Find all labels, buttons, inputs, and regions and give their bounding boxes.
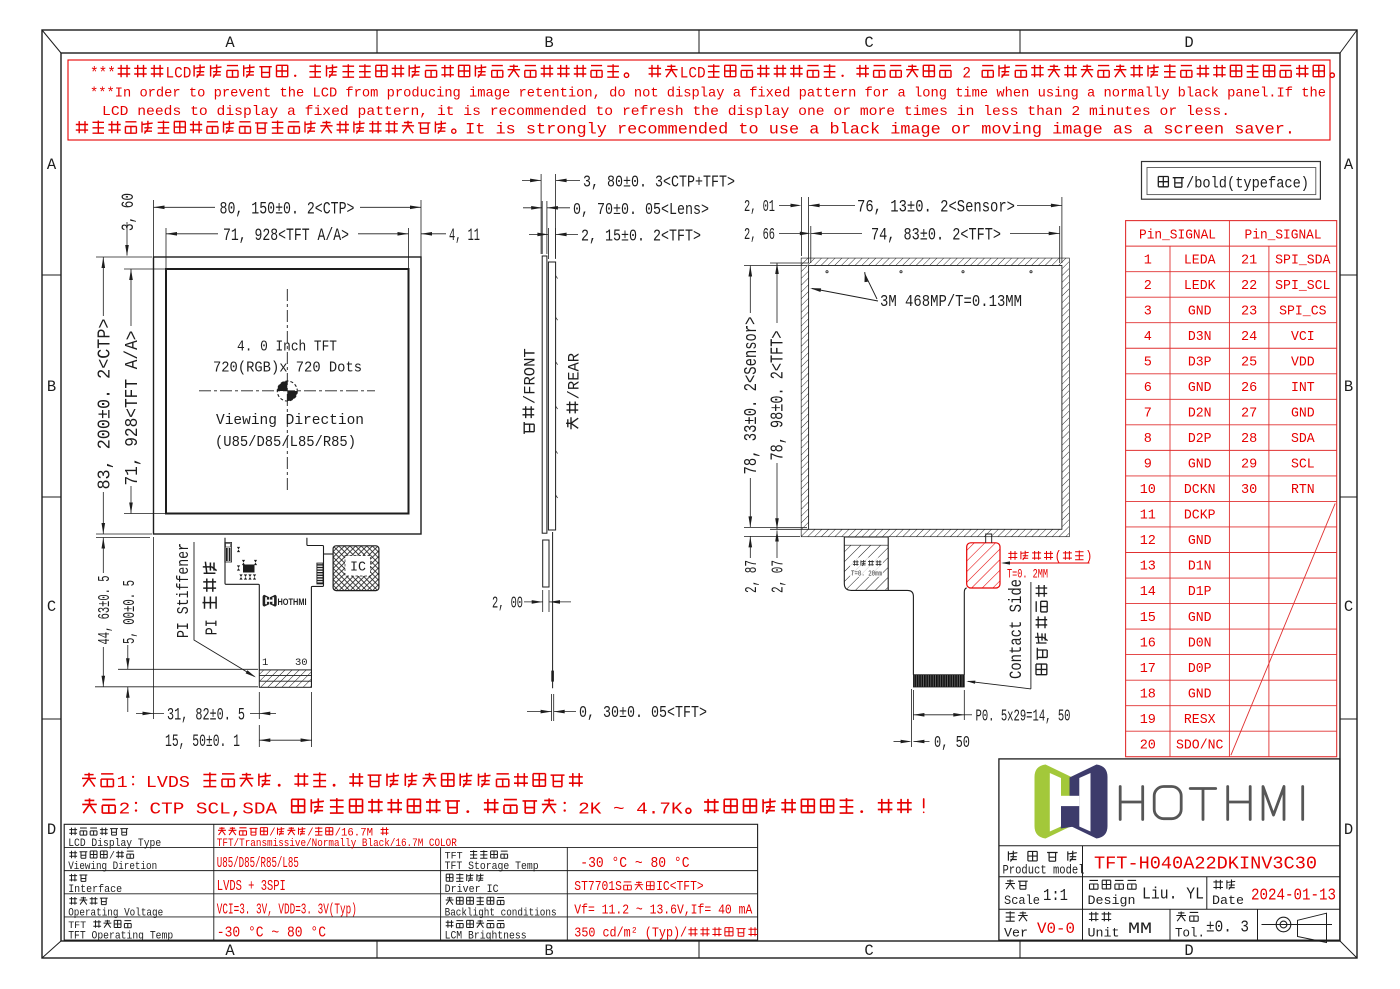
svg-text:P0. 5x29=14, 50: P0. 5x29=14, 50 [976,706,1071,725]
svg-text:IC<TFT>: IC<TFT> [656,879,704,895]
svg-text:/bold(typeface): /bold(typeface) [1186,175,1309,193]
svg-text:/REAR: /REAR [566,353,584,400]
svg-text:CTP SCL,SDA: CTP SCL,SDA [150,800,289,819]
svg-text:D2N: D2N [1188,407,1212,422]
svg-text:350 cd/m² (Typ)/: 350 cd/m² (Typ)/ [574,925,687,941]
svg-text:D: D [47,821,56,839]
svg-text:80, 150±0. 2<CTP>: 80, 150±0. 2<CTP> [220,199,355,219]
svg-text:B: B [47,378,56,396]
svg-text:D1N: D1N [1188,560,1212,575]
svg-text:1: 1 [262,657,268,669]
svg-text:Contact Side: Contact Side [1007,579,1027,679]
svg-text:Driver IC: Driver IC [445,884,499,896]
svg-text:D: D [1344,821,1353,839]
svg-text:5, 00±0. 5: 5, 00±0. 5 [121,580,140,644]
svg-text:15: 15 [1140,611,1156,626]
svg-text:3, 80±0. 3<CTP+TFT>: 3, 80±0. 3<CTP+TFT> [583,173,735,192]
svg-text:1: 1 [117,773,128,792]
svg-text:VDD: VDD [1291,355,1315,370]
svg-text:Pin_SIGNAL: Pin_SIGNAL [1245,228,1322,244]
svg-text:720(RGB)x 720 Dots: 720(RGB)x 720 Dots [213,360,362,377]
svg-text:4: 4 [1144,330,1152,345]
svg-text:74, 83±0. 2<TFT>: 74, 83±0. 2<TFT> [871,225,1001,245]
svg-text:PI Stiffener: PI Stiffener [175,543,194,638]
svg-text:SCL: SCL [1291,458,1315,473]
svg-text:B: B [544,942,553,960]
svg-text:SDO/NC: SDO/NC [1176,738,1223,753]
svg-text:D3N: D3N [1188,330,1212,345]
svg-text:2, 01: 2, 01 [744,198,775,217]
svg-text:D: D [1184,34,1193,52]
svg-text:GND: GND [1188,687,1212,702]
svg-text:SPI_SDA: SPI_SDA [1275,253,1331,268]
svg-text:5: 5 [1144,355,1152,370]
svg-text:TFT Storage Temp: TFT Storage Temp [445,861,539,873]
svg-text:18: 18 [1140,687,1156,702]
svg-text:DCKN: DCKN [1184,483,1216,498]
svg-text:30: 30 [295,657,308,669]
svg-text:LEDK: LEDK [1184,279,1216,294]
svg-text:GND: GND [1188,534,1212,549]
svg-text:11: 11 [1140,509,1156,524]
svg-text:19: 19 [1140,713,1156,728]
svg-text:D0P: D0P [1188,662,1212,677]
svg-text:Pin_SIGNAL: Pin_SIGNAL [1139,228,1216,244]
svg-text:23: 23 [1241,304,1257,319]
svg-text:***: *** [90,65,116,83]
svg-text:Backlight conditions: Backlight conditions [445,907,557,919]
svg-text:78, 98±0. 2<TFT>: 78, 98±0. 2<TFT> [769,331,789,461]
svg-text:GND: GND [1188,381,1212,396]
svg-text:-30 °C ~ 80 °C: -30 °C ~ 80 °C [580,856,689,872]
svg-text:GND: GND [1291,407,1315,422]
svg-text:Unit: Unit [1088,926,1120,941]
svg-text:C: C [864,942,873,960]
svg-text:3M 468MP/T=0.13MM: 3M 468MP/T=0.13MM [880,292,1022,311]
svg-text:U85/D85/R85/L85: U85/D85/R85/L85 [217,856,299,872]
svg-text:4, 11: 4, 11 [449,226,480,246]
svg-text:TFT/Transmissive/Normally Blac: TFT/Transmissive/Normally Black/16.7M CO… [217,838,457,850]
svg-text:1: 1 [1144,253,1152,268]
svg-text:VCI: VCI [1291,330,1315,345]
svg-text:RESX: RESX [1184,713,1216,728]
svg-text:A: A [225,34,235,52]
svg-text:2, 07: 2, 07 [770,560,789,593]
svg-text:13: 13 [1140,560,1156,575]
svg-text:71, 928<TFT A/A>: 71, 928<TFT A/A> [223,226,349,246]
svg-text:INT: INT [1291,381,1315,396]
svg-text:A: A [47,156,57,174]
svg-text:44, 63±0. 5: 44, 63±0. 5 [96,576,115,645]
svg-text:2, 00: 2, 00 [492,594,523,613]
svg-text:29: 29 [1241,458,1257,473]
svg-text:24: 24 [1241,330,1257,345]
svg-text:Date: Date [1212,893,1244,908]
svg-text:C: C [1344,598,1353,616]
svg-text:LCD needs to display a fixed p: LCD needs to display a fixed pattern, it… [102,104,1230,120]
svg-text:3: 3 [1144,304,1152,319]
svg-text:Product model: Product model [1003,863,1085,878]
svg-text:-30 °C ~ 80 °C: -30 °C ~ 80 °C [217,925,326,941]
svg-text:SPI_CS: SPI_CS [1279,304,1326,319]
svg-text:28: 28 [1241,432,1257,447]
svg-text:15, 50±0. 1: 15, 50±0. 1 [165,732,240,752]
svg-text:2K ~ 4.7K: 2K ~ 4.7K [578,800,683,819]
svg-text:ST7701S: ST7701S [574,879,622,895]
svg-text:6: 6 [1144,381,1152,396]
svg-text:C: C [864,34,873,52]
svg-text:2, 66: 2, 66 [744,226,775,245]
svg-text:83, 200±0. 2<CTP>: 83, 200±0. 2<CTP> [95,319,115,490]
svg-text:4. 0 Inch TFT: 4. 0 Inch TFT [237,339,337,356]
svg-text:IC: IC [350,560,366,576]
svg-text:LCM Brightness: LCM Brightness [445,930,527,942]
svg-text:Viewing Diretion: Viewing Diretion [68,861,157,873]
svg-text:Scale: Scale [1004,893,1040,908]
svg-text:76, 13±0. 2<Sensor>: 76, 13±0. 2<Sensor> [857,197,1015,217]
svg-text:9: 9 [1144,458,1152,473]
svg-text:8: 8 [1144,432,1152,447]
svg-text:T=0. 20mm: T=0. 20mm [851,571,882,579]
svg-text:78, 33±0. 2<Sensor>: 78, 33±0. 2<Sensor> [742,317,762,475]
svg-text:Design: Design [1088,893,1136,908]
svg-text:0, 50: 0, 50 [934,733,970,752]
svg-text:2: 2 [119,800,131,819]
svg-text:PI: PI [204,611,223,635]
svg-text:31, 82±0. 5: 31, 82±0. 5 [167,705,245,725]
svg-text:LVDS: LVDS [146,773,201,792]
svg-text:2024-01-13: 2024-01-13 [1251,886,1336,905]
svg-text:D0N: D0N [1188,636,1212,651]
svg-text:±0. 3: ±0. 3 [1206,919,1249,938]
svg-text:21: 21 [1241,253,1257,268]
svg-text:GND: GND [1188,458,1212,473]
svg-text:2: 2 [954,65,980,83]
svg-text:10: 10 [1140,483,1156,498]
svg-text:30: 30 [1241,483,1257,498]
svg-text:0, 70±0. 05<Lens>: 0, 70±0. 05<Lens> [573,201,709,220]
svg-text:B: B [1344,378,1353,396]
svg-text:Tol.: Tol. [1175,926,1205,941]
svg-text:(U85/D85/L85/R85): (U85/D85/L85/R85) [215,434,356,451]
svg-text:2: 2 [1144,279,1152,294]
svg-text:SDA: SDA [1291,432,1316,447]
svg-text:D: D [1184,942,1193,960]
svg-text:LCD: LCD [166,65,192,83]
svg-text:TFT-H040A22DKINV3C30: TFT-H040A22DKINV3C30 [1094,854,1317,875]
svg-text:16: 16 [1140,636,1156,651]
svg-text:1:1: 1:1 [1043,886,1068,905]
svg-text:71, 928<TFT A/A>: 71, 928<TFT A/A> [123,331,143,486]
svg-text:VCI=3. 3V, VDD=3. 3V(Typ): VCI=3. 3V, VDD=3. 3V(Typ) [217,902,357,918]
svg-text:12: 12 [1140,534,1156,549]
svg-text:Ver: Ver [1004,926,1028,941]
svg-text:27: 27 [1241,407,1257,422]
svg-text:3, 60: 3, 60 [119,193,139,231]
svg-text:26: 26 [1241,381,1257,396]
svg-text:7: 7 [1144,407,1152,422]
svg-text:DCKP: DCKP [1184,509,1216,524]
svg-text:GND: GND [1188,611,1212,626]
svg-text:D3P: D3P [1188,355,1212,370]
svg-text:Liu. YL: Liu. YL [1142,885,1204,904]
svg-text:25: 25 [1241,355,1257,370]
svg-text:LCD: LCD [680,65,706,83]
svg-text:A: A [1344,156,1354,174]
svg-text:Vf= 11.2 ~ 13.6V,If= 40 mA: Vf= 11.2 ~ 13.6V,If= 40 mA [574,902,752,918]
svg-text:It is strongly recommended to: It is strongly recommended to use a blac… [465,121,1295,139]
svg-text:0, 30±0. 05<TFT>: 0, 30±0. 05<TFT> [579,704,707,723]
svg-text:Interface: Interface [68,884,122,896]
svg-text:D1P: D1P [1188,585,1212,600]
svg-text:20: 20 [1140,738,1156,753]
svg-text:TFT Operating Temp: TFT Operating Temp [68,930,173,942]
svg-text:V0-0: V0-0 [1037,920,1075,938]
svg-text:***In order to prevent the LCD: ***In order to prevent the LCD from prod… [90,86,1326,102]
svg-text:17: 17 [1140,662,1156,677]
svg-text:/FRONT: /FRONT [522,348,540,404]
svg-text:A: A [225,942,235,960]
svg-text:14: 14 [1140,585,1156,600]
svg-text:22: 22 [1241,279,1257,294]
svg-text:LCD Display Type: LCD Display Type [68,838,161,850]
svg-text:MM: MM [1128,920,1152,938]
svg-text:2, 87: 2, 87 [743,560,762,593]
svg-text:C: C [47,598,56,616]
svg-text:RTN: RTN [1291,483,1315,498]
svg-text:GND: GND [1188,304,1212,319]
svg-text:2, 15±0. 2<TFT>: 2, 15±0. 2<TFT> [581,227,701,246]
svg-text:LVDS + 3SPI: LVDS + 3SPI [217,879,286,895]
svg-text:HOTHMI: HOTHMI [278,597,307,608]
svg-text:Operating Voltage: Operating Voltage [68,907,163,919]
svg-text:D2P: D2P [1188,432,1212,447]
svg-text:SPI_SCL: SPI_SCL [1275,279,1330,294]
svg-text:Viewing Direction: Viewing Direction [216,412,364,429]
svg-text:B: B [544,34,553,52]
svg-text:LEDA: LEDA [1184,253,1216,268]
